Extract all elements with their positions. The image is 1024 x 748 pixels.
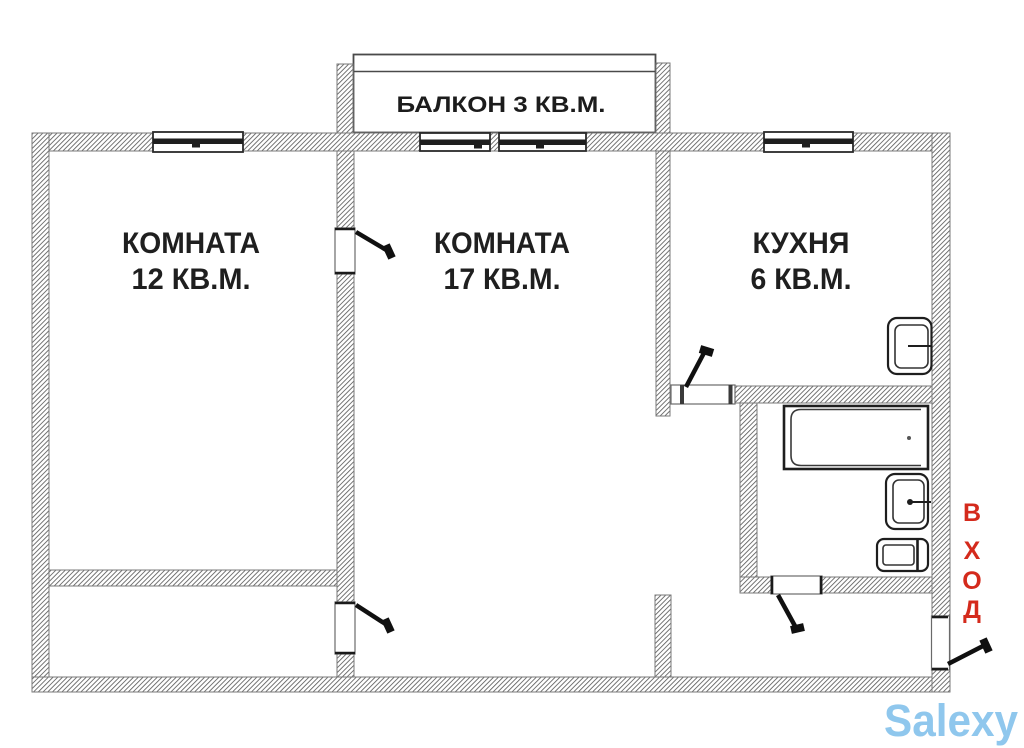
svg-text:12 КВ.М.: 12 КВ.М. xyxy=(132,263,251,296)
svg-text:17 КВ.М.: 17 КВ.М. xyxy=(444,263,561,296)
svg-text:В: В xyxy=(963,499,981,527)
svg-text:Х: Х xyxy=(964,537,981,565)
svg-text:КОМНАТА: КОМНАТА xyxy=(122,227,260,260)
svg-text:6 КВ.М.: 6 КВ.М. xyxy=(751,263,852,296)
svg-text:Д: Д xyxy=(963,596,981,624)
svg-text:КУХНЯ: КУХНЯ xyxy=(753,227,850,260)
svg-text:О: О xyxy=(962,567,981,595)
svg-text:Salexy: Salexy xyxy=(884,695,1018,746)
svg-text:КОМНАТА: КОМНАТА xyxy=(434,227,570,260)
svg-text:БАЛКОН 3 КВ.М.: БАЛКОН 3 КВ.М. xyxy=(397,92,606,117)
